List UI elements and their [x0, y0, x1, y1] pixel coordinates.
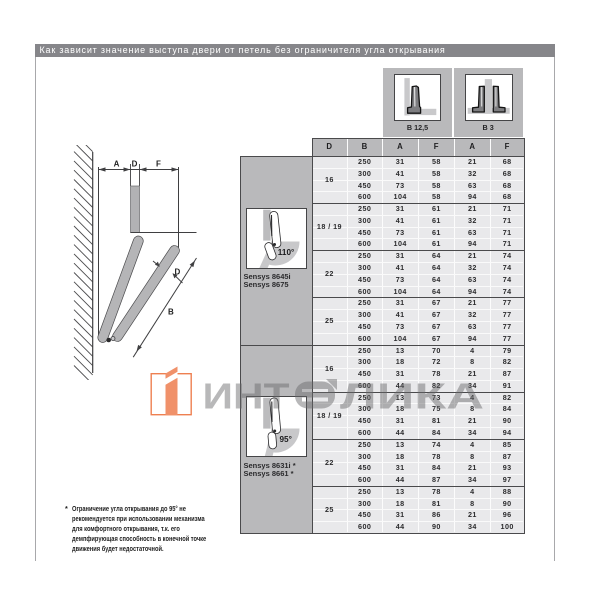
- svg-text:ИНТ: ИНТ: [203, 376, 290, 417]
- svg-text:ЛИКА: ЛИКА: [340, 376, 484, 417]
- svg-text:110°: 110°: [277, 247, 293, 256]
- svg-text:B: B: [168, 308, 174, 317]
- svg-text:D: D: [132, 160, 138, 169]
- svg-text:95°: 95°: [279, 434, 291, 443]
- svg-text:F: F: [156, 160, 161, 169]
- svg-text:D: D: [175, 267, 181, 276]
- svg-text:A: A: [114, 160, 120, 169]
